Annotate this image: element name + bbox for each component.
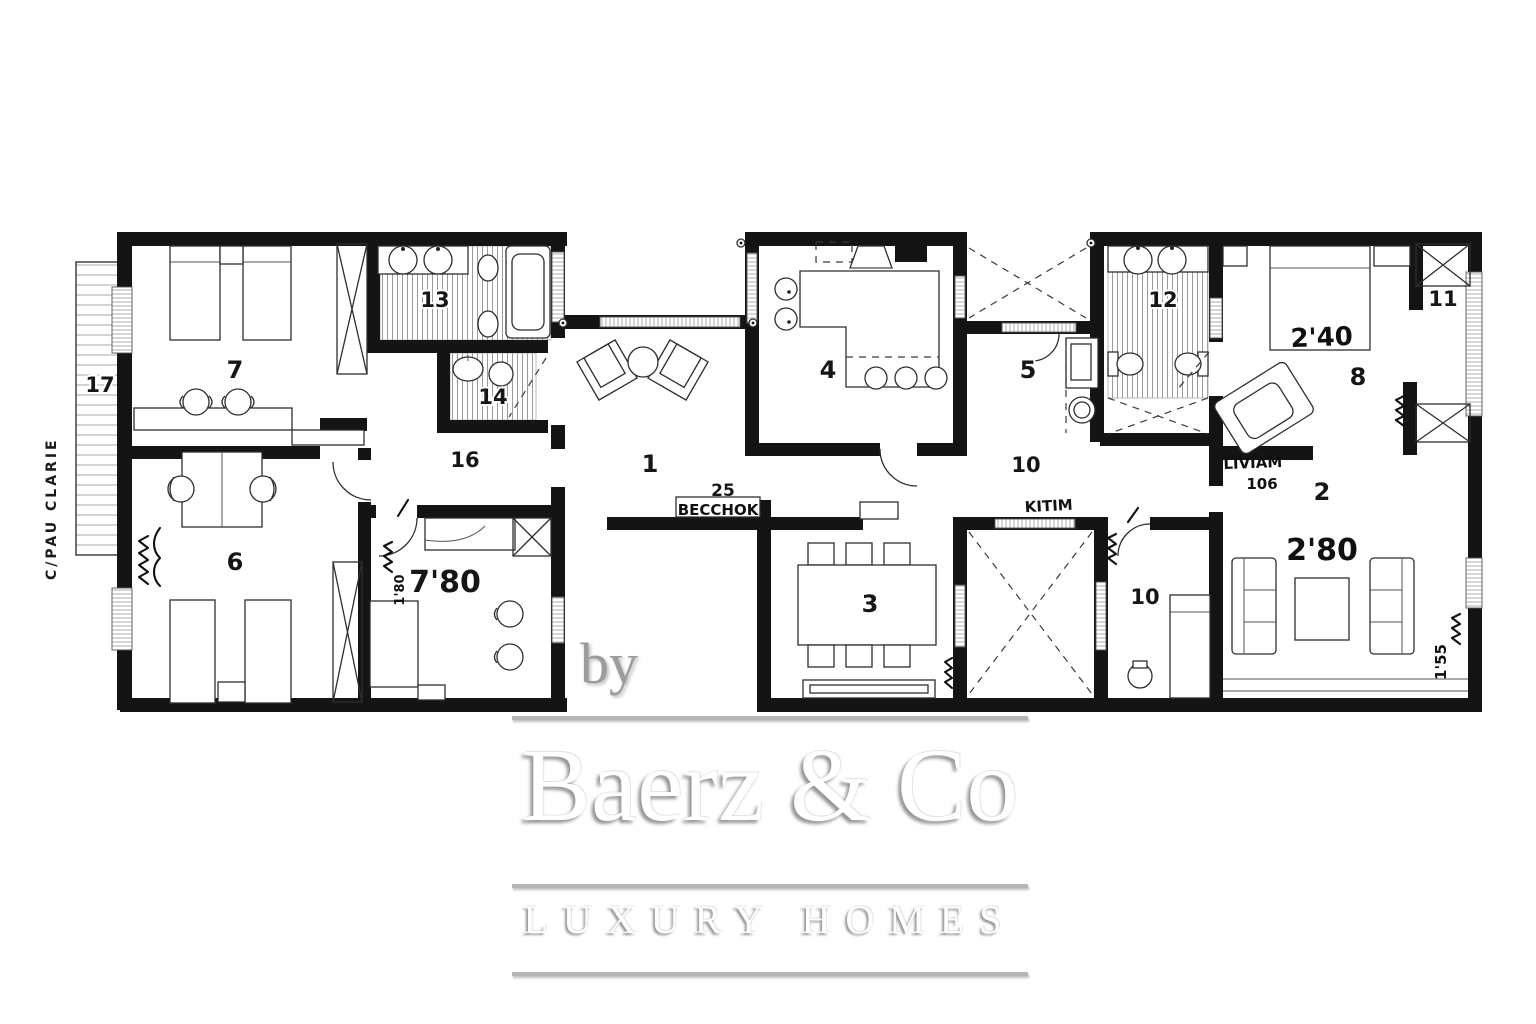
annotation-sofa-width: 2'80 — [1286, 533, 1358, 568]
bedroom-780-furniture — [370, 518, 551, 700]
room-label-bathroom-14: 14 — [478, 385, 507, 409]
annotation-door-width: 1'80 — [393, 574, 408, 605]
annotation-becchok: BECCHOK — [678, 501, 760, 519]
floor-plan-page: by Baerz & Co LUXURY HOMES — [0, 0, 1536, 1024]
room-label-hall-16: 16 — [450, 448, 479, 472]
room-label-corridor-upper: 10 — [1011, 453, 1040, 477]
annotation-room-width: 7'80 — [409, 565, 481, 600]
room-label-terrace-17: 17 — [85, 373, 114, 397]
kitchen-furniture — [775, 242, 947, 389]
closet-11-furniture — [1416, 244, 1470, 442]
annotation-kitim: KITIM — [1024, 496, 1073, 516]
annotation-liviam-number: 106 — [1246, 475, 1277, 493]
room-label-corridor-lower: 10 — [1130, 585, 1159, 609]
bedroom-7-furniture — [134, 244, 367, 445]
room-label-bedroom-7: 7 — [227, 356, 244, 384]
room-label-kitchen: 4 — [820, 356, 837, 384]
room-label-bathroom-13: 13 — [420, 288, 449, 312]
room-label-living-room: 2 — [1314, 478, 1331, 506]
corridor-furniture — [1128, 595, 1210, 698]
room-label-entry-hall: 1 — [642, 450, 659, 478]
room-label-closet-11: 11 — [1428, 287, 1457, 311]
bedroom-6-furniture — [168, 452, 362, 703]
annotation-window-width: 1'55 — [1432, 644, 1450, 680]
street-label: C/PAU CLARIE — [44, 437, 60, 580]
room-label-bathroom-12: 12 — [1148, 288, 1177, 312]
annotation-bed-width: 2'40 — [1290, 322, 1353, 354]
room-label-bedroom-8: 8 — [1350, 363, 1367, 391]
room-label-dining-room: 3 — [862, 590, 879, 618]
floor-plan-drawing: 1 2 3 4 5 6 7 8 10 10 11 12 13 14 16 17 … — [0, 0, 1536, 1024]
room-label-utility: 5 — [1020, 356, 1037, 384]
room-label-bedroom-6: 6 — [227, 548, 244, 576]
annotation-liviam: LIVIAM — [1223, 453, 1282, 473]
room-label-sideboard-25: 25 — [711, 481, 735, 501]
